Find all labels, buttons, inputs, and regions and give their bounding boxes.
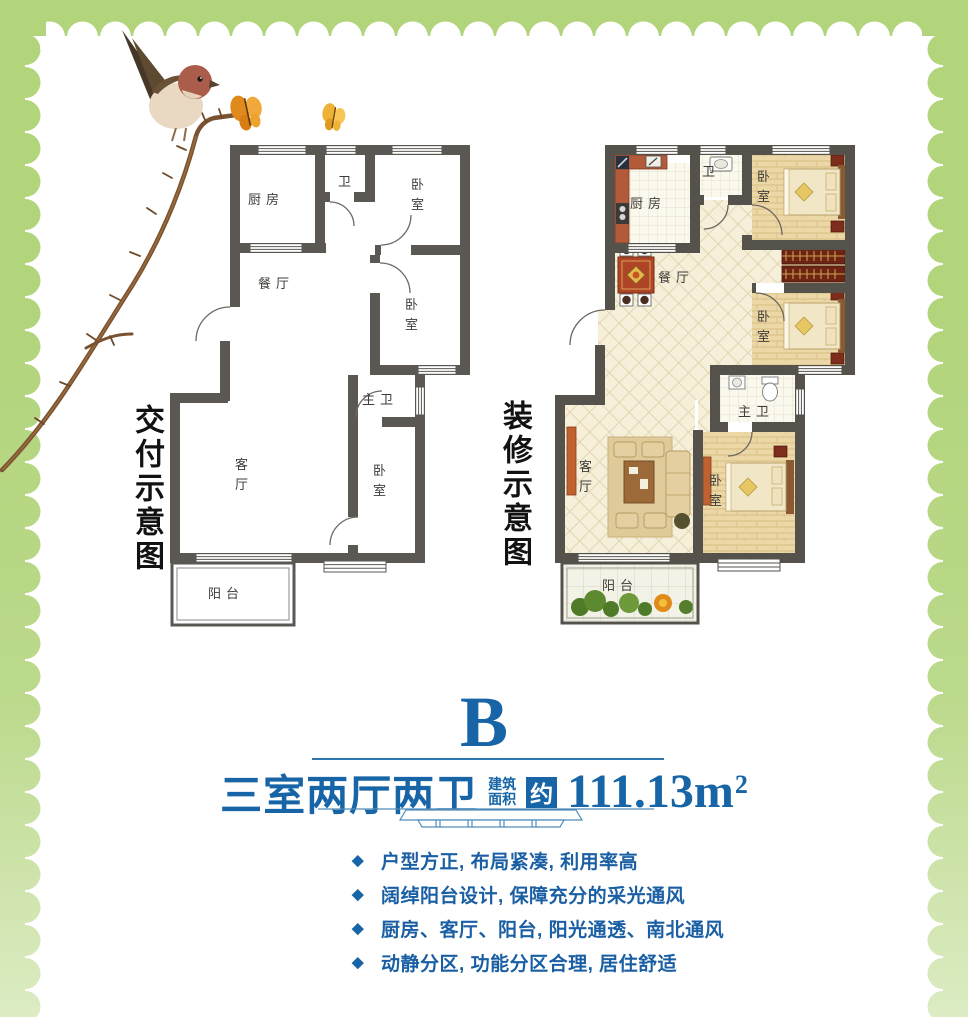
room-label-living: 客厅: [578, 457, 593, 496]
butterfly-icon: [320, 102, 348, 133]
room-label-balcony: 阳台: [602, 575, 638, 594]
feature-text: 厨房、客厅、阳台, 阳光通透、南北通风: [381, 915, 724, 942]
room-label-dining: 餐厅: [258, 273, 294, 292]
walls-layer: [170, 145, 470, 563]
floorplan-delivery: 厨房 卫 卧室 餐厅 卧室 主卫 客厅 卧室 阳台: [130, 145, 470, 635]
area-label: 建筑 面积: [488, 777, 516, 808]
area-exponent: 2: [735, 770, 748, 799]
washbasin-icon: [729, 376, 745, 389]
room-label-bedroom-bottom: 卧室: [708, 471, 723, 510]
feature-item: ◆ 阔绰阳台设计, 保障充分的采光通风: [352, 884, 724, 905]
room-label-dining: 餐厅: [658, 267, 694, 286]
room-label-master-bath: 主卫: [738, 401, 774, 420]
room-label-bedroom-top: 卧室: [756, 167, 771, 206]
title-divider: [312, 758, 664, 760]
feature-item: ◆ 户型方正, 布局紧凑, 利用率高: [352, 850, 724, 871]
building-ornament: [318, 806, 654, 834]
room-label-bedroom-mid: 卧室: [404, 295, 419, 334]
room-label-bedroom-mid: 卧室: [756, 307, 771, 346]
diamond-bullet-icon: ◆: [352, 887, 364, 902]
feature-text: 动静分区, 功能分区合理, 居住舒适: [381, 949, 677, 976]
room-label-living: 客厅: [234, 455, 249, 494]
feature-text: 户型方正, 布局紧凑, 利用率高: [381, 847, 638, 874]
butterfly-icon: [228, 91, 266, 133]
unit-letter: B: [384, 686, 584, 758]
diamond-bullet-icon: ◆: [352, 853, 364, 868]
caption-delivery: 交付示意图: [124, 404, 168, 574]
feature-text: 阔绰阳台设计, 保障充分的采光通风: [381, 881, 685, 908]
room-label-balcony: 阳台: [208, 583, 244, 602]
diamond-bullet-icon: ◆: [352, 955, 364, 970]
room-label-bedroom-top: 卧室: [410, 175, 425, 214]
feature-item: ◆ 动静分区, 功能分区合理, 居住舒适: [352, 952, 724, 973]
approx-badge: 约: [526, 777, 557, 808]
caption-furnished: 装修示意图: [492, 400, 536, 570]
room-label-bedroom-bottom: 卧室: [372, 461, 387, 500]
toilet-icon: [762, 377, 778, 401]
area-label-top: 建筑: [488, 777, 516, 792]
feature-item: ◆ 厨房、客厅、阳台, 阳光通透、南北通风: [352, 918, 724, 939]
room-label-bath: 卫: [702, 161, 720, 180]
room-label-bath: 卫: [338, 171, 356, 190]
flyer-root: 厨房 卫 卧室 餐厅 卧室 主卫 客厅 卧室 阳台 交付示意图: [0, 0, 968, 1017]
feature-list: ◆ 户型方正, 布局紧凑, 利用率高 ◆ 阔绰阳台设计, 保障充分的采光通风 ◆…: [352, 850, 724, 986]
room-label-master-bath: 主卫: [362, 389, 398, 408]
room-label-kitchen: 厨房: [248, 189, 284, 208]
room-label-kitchen: 厨房: [630, 193, 666, 212]
diamond-bullet-icon: ◆: [352, 921, 364, 936]
floorplan-furnished: 厨房 卫 卧室 餐厅 卧室 主卫 客厅 卧室 阳台: [550, 145, 910, 635]
